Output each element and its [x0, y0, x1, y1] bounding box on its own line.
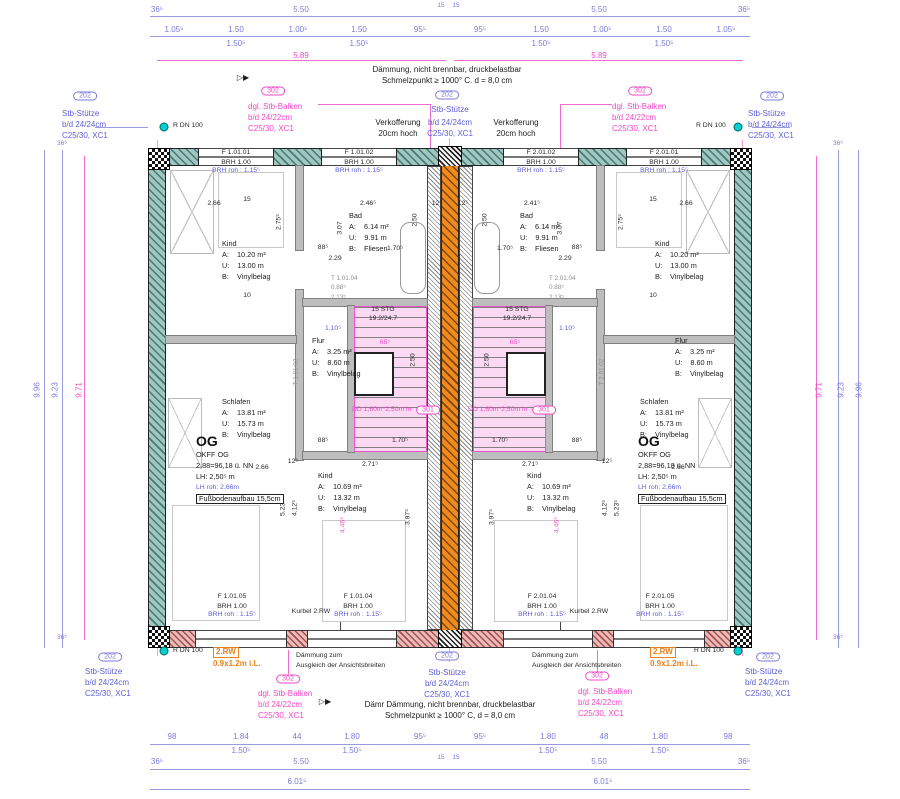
drain-dot-tr [734, 123, 743, 132]
stb-balken-bl: dgl. Stb-Balken [258, 690, 312, 699]
wall-interior [597, 166, 604, 250]
dim-int: 3.07 [336, 221, 343, 234]
dim-int: 12⁵ [602, 458, 612, 465]
dim-right: 9.23 [838, 382, 847, 398]
dim-top-mag: 5.89 [293, 52, 309, 61]
door-label-tl-line: 0.88⁵ [331, 283, 358, 292]
stb-balken-br: dgl. Stb-Balken [578, 688, 632, 697]
dim-line-right-mag [816, 156, 817, 640]
dim-int: 2.50 [411, 213, 418, 226]
room-flur-r-line: A: 3.25 m² [675, 346, 724, 357]
dim-top2b: 1.50⁵ [350, 40, 369, 49]
dim-int: 2.71⁵ [522, 461, 538, 468]
room-bad-l-line: U: 9.91 m [349, 232, 389, 243]
fussboden: Fußbodenaufbau 15,5cm [196, 494, 284, 504]
drain-dot-bl [160, 647, 169, 656]
room-kind-br-line: A: 10.69 m² [527, 481, 576, 492]
wall-top-pier [459, 148, 504, 166]
stair-eye-right [506, 352, 546, 396]
door-label: T 2.01.02 [600, 359, 607, 386]
badge-302-bl: 302 [276, 675, 300, 684]
dim-line-top-1 [150, 16, 750, 17]
floorplan-canvas: 36⁵5.5015155.5036⁵1.05⁵1.501.00⁵1.5095⁵9… [0, 0, 900, 799]
dim-int: 3.97⁵ [488, 509, 495, 525]
window-label: F 1.01.04BRH 1.00 [343, 592, 372, 612]
dim-int: 4.12⁵ [291, 500, 298, 516]
r-dn-100-bl: R DN 100 [173, 647, 203, 654]
room-kind-bl-line: Kind [318, 470, 367, 481]
dim-bot1: 1.80 [540, 733, 556, 742]
window-label-line: BRH 1.00 [217, 602, 246, 612]
stb-stuetze-bl: b/d 24/24cm [85, 679, 129, 688]
dim-bot1b: 1.50⁵ [232, 747, 251, 756]
badge-302-tl: 302 [261, 87, 285, 96]
dim-left: 9.96 [34, 382, 43, 398]
badge-202-tl: 202 [73, 92, 97, 101]
window-label-line: F 2.01.04 [527, 592, 556, 602]
stb-stuetze-bc: b/d 24/24cm [425, 680, 469, 689]
room-bad-r-line: U: 9.91 m [520, 232, 560, 243]
dim-bot1b: 1.50⁵ [651, 747, 670, 756]
room-flur-r-line: U: 8.60 m [675, 357, 724, 368]
badge-202-bl: 202 [98, 653, 122, 662]
dim-bot1b: 1.50⁵ [539, 747, 558, 756]
dim-top: 15 [437, 2, 444, 9]
kurbel: Kurbel 2.RW [292, 608, 330, 615]
stb-stuetze-br: b/d 24/24cm [745, 679, 789, 688]
stb-stuetze-bc: C25/30, XC1 [424, 691, 470, 700]
wall-interior [473, 452, 597, 459]
drain-dot-tl [160, 123, 169, 132]
room-schlafen-r: SchlafenA: 13.81 m²U: 15.73 mB: Vinylbel… [640, 396, 689, 440]
room-kind-tr-line: U: 13.00 m [655, 260, 704, 271]
window-label-line: BRH 1.00 [221, 158, 250, 168]
dim-int-mag: 4.46⁵ [553, 517, 560, 533]
r-dn-100-br: R DN 100 [694, 647, 724, 654]
daemmung-ausgleich-r-line: Dämmung zum [532, 651, 621, 661]
dim-bot1: 44 [293, 733, 302, 742]
badge-202-br: 202 [756, 653, 780, 662]
bed [218, 172, 284, 248]
room-kind-br-line: Kind [527, 470, 576, 481]
window-bottom-3 [504, 630, 592, 648]
window-bottom-2 [308, 630, 396, 648]
wall-bottom-pier [459, 630, 504, 648]
room-kind-tl-line: B: Vinylbelag [222, 271, 271, 282]
room-kind-br-line: B: Vinylbelag [527, 503, 576, 514]
daemmung-ausgleich-r-line: Ausgleich der Ansichtsbreiten [532, 661, 621, 671]
dim-line-right-2 [858, 150, 859, 648]
dim-int: 2.66 [255, 464, 268, 471]
dim-int: 15 [243, 196, 251, 203]
dim-top2: 1.00⁵ [593, 26, 612, 35]
stb-stuetze-tr: Stb-Stütze [748, 110, 785, 119]
stb-balken-br: C25/30, XC1 [578, 710, 624, 719]
dim-bot2: 36⁵ [151, 758, 163, 767]
verkofferung-left: 20cm hoch [378, 130, 417, 139]
stb-stuetze-br: C25/30, XC1 [745, 690, 791, 699]
daemmung-ausgleich-l-line: Ausgleich der Ansichtsbreiten [296, 661, 385, 671]
dim-int: 2.71⁵ [362, 461, 378, 468]
stb-stuetze-top: C25/30, XC1 [427, 130, 473, 139]
dim-int: 12⁵ [432, 200, 442, 207]
room-schlafen-l-line: Schlafen [222, 396, 271, 407]
wall-interior [166, 336, 296, 343]
kurbel: Kurbel 2.RW [570, 608, 608, 615]
rw-box: 2.RW [650, 647, 676, 658]
room-schlafen-r-line: U: 15.73 m [640, 418, 689, 429]
window-label-line: F 1.01.04 [343, 592, 372, 602]
leader-302-tl [318, 104, 430, 105]
window-label: F 1.01.05BRH 1.00 [217, 592, 246, 612]
room-flur-r-line: B: Vinylbelag [675, 368, 724, 379]
dim-int: 3.97⁵ [404, 509, 411, 525]
stb-balken-tr: C25/30, XC1 [612, 125, 658, 134]
window-label: F 1.01.01BRH 1.00 [221, 148, 250, 168]
window-label-line: F 2.01.01 [649, 148, 678, 158]
room-kind-tl-line: Kind [222, 238, 271, 249]
dim-stair-mag: 65⁵ [510, 339, 520, 346]
room-kind-br-line: U: 13.32 m [527, 492, 576, 503]
dim-top: 36⁵ [151, 6, 163, 15]
og-info-r-line: OKFF OG [638, 449, 695, 460]
wall-bottom-pier [592, 630, 614, 648]
dim-int: 10 [243, 292, 251, 299]
stb-balken-tl: C25/30, XC1 [248, 125, 294, 134]
door-label-tr: T 2.01.040.88⁵2.13⁵ [549, 274, 576, 302]
dim-int: 5.23⁵ [613, 500, 620, 516]
dim-bot3: 6.01⁵ [594, 778, 613, 787]
dim-int: 88⁵ [318, 244, 328, 251]
stb-stuetze-tr: b/d 24/24cm [748, 121, 792, 130]
dim-int: 1.70⁵ [387, 245, 403, 252]
dim-bot2: 5.50 [293, 758, 309, 767]
dim-bot1: 1.84 [233, 733, 249, 742]
dim-line-left-2 [62, 150, 63, 648]
room-kind-bl: KindA: 10.69 m²U: 13.32 mB: Vinylbelag [318, 470, 367, 514]
window-label-line: F 1.01.02 [344, 148, 373, 158]
stb-stuetze-bl: Stb-Stütze [85, 668, 122, 677]
dim-bot2: 36⁵ [738, 758, 750, 767]
window-label-line: BRH 1.00 [526, 158, 555, 168]
stair-label: 15 STG [505, 306, 528, 313]
party-wall-insulation-left [427, 166, 441, 630]
window-label: F 2.01.02BRH 1.00 [526, 148, 555, 168]
rw-size: 0.9x1.2m i.L. [213, 660, 261, 669]
room-schlafen-r-line: A: 13.81 m² [640, 407, 689, 418]
dim-int: 2.50 [409, 353, 416, 366]
og-info-l: OKFF OG2,88=96,18 ü. NNLH: 2,50⁵ m [196, 449, 253, 482]
badge-302-tr: 302 [628, 87, 652, 96]
og-info-l-line: OKFF OG [196, 449, 253, 460]
dim-left: 9.23 [52, 382, 61, 398]
leader-302-bl [288, 650, 289, 674]
dim-top: 15 [452, 2, 459, 9]
dim-top-mag: 5.89 [591, 52, 607, 61]
dim-top2: 1.50 [656, 26, 672, 35]
door-label-tl: T 1.01.040.88⁵2.13⁵ [331, 274, 358, 302]
dim-bot2: 15 [437, 754, 444, 761]
room-flur-l: FlurA: 3.25 m²U: 8.60 mB: Vinylbelag [312, 335, 361, 379]
room-kind-tr-line: Kind [655, 238, 704, 249]
room-bad-r-line: Bad [520, 210, 560, 221]
stb-balken-tr: b/d 24/22cm [612, 114, 656, 123]
og-title: OG [196, 434, 218, 449]
window-label: F 2.01.05BRH 1.00 [645, 592, 674, 612]
stb-stuetze-tl: b/d 24/24cm [62, 121, 106, 130]
room-kind-bl-line: A: 10.69 m² [318, 481, 367, 492]
og-info-r: OKFF OG2,88=96,18 ü. NNLH: 2,50⁵ m [638, 449, 695, 482]
stb-balken-tl: b/d 24/22cm [248, 114, 292, 123]
room-flur-l-line: B: Vinylbelag [312, 368, 361, 379]
dim-line-left-1 [44, 150, 45, 648]
wall-interior [303, 299, 427, 306]
window-label-line: BRH 1.00 [649, 158, 678, 168]
dim-int: 88⁵ [318, 437, 328, 444]
wall-bottom-pier [286, 630, 308, 648]
dim-line-bot-1 [150, 744, 750, 745]
window-label-line: F 2.01.05 [645, 592, 674, 602]
r-dn-100-tl: R DN 100 [173, 122, 203, 129]
room-kind-br: KindA: 10.69 m²U: 13.32 mB: Vinylbelag [527, 470, 576, 514]
door-label-tl-line: 2.13⁵ [331, 293, 358, 302]
badge-202-top: 202 [435, 91, 459, 100]
room-kind-tl: KindA: 10.20 m²U: 13.00 mB: Vinylbelag [222, 238, 271, 282]
room-flur-l-line: A: 3.25 m² [312, 346, 361, 357]
dim-int: 15 [649, 196, 657, 203]
wall-top-pier [578, 148, 627, 166]
daemmung-ausgleich-l-line: Dämmung zum [296, 651, 385, 661]
badge-301-stair-r: 301 [532, 406, 556, 415]
badge-202-bc: 202 [435, 652, 459, 661]
party-wall [441, 166, 459, 630]
stb-balken-bl: b/d 24/22cm [258, 701, 302, 710]
dim-top2: 95⁵ [474, 26, 486, 35]
room-flur-l-line: U: 8.60 m [312, 357, 361, 368]
daemmung-ausgleich-r: Dämmung zumAusgleich der Ansichtsbreiten [532, 651, 621, 671]
badge-302-br: 302 [585, 672, 609, 681]
fussboden: Fußbodenaufbau 15,5cm [638, 494, 726, 504]
dim-bot2: 5.50 [591, 758, 607, 767]
dim-int-blue: 1.10⁵ [325, 325, 341, 332]
dim-int: 1.70⁵ [492, 437, 508, 444]
dim-int: 88⁵ [572, 437, 582, 444]
party-wall-column-bottom [438, 628, 462, 648]
dim-bot1: 98 [724, 733, 733, 742]
stb-stuetze-tr: C25/30, XC1 [748, 132, 794, 141]
dim-top2: 95⁵ [414, 26, 426, 35]
room-kind-bl-line: B: Vinylbelag [318, 503, 367, 514]
dim-top2: 1.05⁵ [717, 26, 736, 35]
stb-balken-br: b/d 24/22cm [578, 699, 622, 708]
window-label-line: BRH 1.00 [343, 602, 372, 612]
stb-balken-tr: dgl. Stb-Balken [612, 103, 666, 112]
dim-line-right-1 [838, 150, 839, 648]
stb-stuetze-top: b/d 24/24cm [428, 119, 472, 128]
dim-right: 36⁵ [833, 634, 843, 641]
window-label-line: BRH 1.00 [645, 602, 674, 612]
dim-top2: 1.00⁵ [289, 26, 308, 35]
room-flur-l-line: Flur [312, 335, 361, 346]
room-bad-l-line: Bad [349, 210, 389, 221]
room-schlafen-l-line: A: 13.81 m² [222, 407, 271, 418]
wall-top-pier [396, 148, 441, 166]
stb-balken-bl: C25/30, XC1 [258, 712, 304, 721]
window-label-line: F 2.01.02 [526, 148, 555, 158]
window-label-line: F 1.01.01 [221, 148, 250, 158]
section-marker: ▷▶ [319, 698, 331, 707]
dim-bot1: 95⁵ [474, 733, 486, 742]
door-label-tr-line: 0.88⁵ [549, 283, 576, 292]
dim-top2: 1.50 [228, 26, 244, 35]
dim-bot3: 6.01⁵ [288, 778, 307, 787]
lh-roh: LH roh: 2,66m [638, 484, 681, 491]
dim-bot1: 1.80 [344, 733, 360, 742]
dim-top2b: 1.50⁵ [655, 40, 674, 49]
stair-dd: DD 1,60m*2,50m in [468, 406, 527, 413]
room-kind-tr: KindA: 10.20 m²U: 13.00 mB: Vinylbelag [655, 238, 704, 282]
stair-label: 19.2/24.7 [503, 315, 531, 322]
wall-interior [473, 299, 597, 306]
bathtub-left [400, 222, 426, 294]
stb-stuetze-bl: C25/30, XC1 [85, 690, 131, 699]
dim-bot2: 15 [452, 754, 459, 761]
room-bad-r: BadA: 6.14 m²U: 9.91 mB: Fliesen [520, 210, 560, 254]
wardrobe [170, 170, 214, 254]
note-top: Dämmung, nicht brennbar, druckbelastbar [373, 66, 522, 75]
room-kind-tl-line: U: 13.00 m [222, 260, 271, 271]
column-corner-tl [148, 148, 170, 170]
window-bottom-4 [614, 630, 704, 648]
dim-top2: 1.05⁵ [165, 26, 184, 35]
badge-202-tr: 202 [760, 92, 784, 101]
column-corner-br [730, 626, 752, 648]
room-bad-r-line: A: 6.14 m² [520, 221, 560, 232]
stair-label: 19.2/24.7 [369, 315, 397, 322]
door-label-tl-line: T 1.01.04 [331, 274, 358, 283]
og-info-l-line: LH: 2,50⁵ m [196, 471, 253, 482]
dim-top2b: 1.50⁵ [227, 40, 246, 49]
bed [616, 172, 682, 248]
wall-exterior-left [148, 148, 166, 648]
door-label-tr-line: T 2.01.04 [549, 274, 576, 283]
room-bad-l-line: B: Fliesen [349, 243, 389, 254]
verkofferung-right: 20cm hoch [496, 130, 535, 139]
dim-int: 2.29 [558, 255, 571, 262]
dim-bot1: 1.80 [652, 733, 668, 742]
rw-size: 0.9x1.2m i.L. [650, 660, 698, 669]
room-kind-tl-line: A: 10.20 m² [222, 249, 271, 260]
dim-int: 2.66 [207, 200, 220, 207]
dim-int: 1.70⁵ [497, 245, 513, 252]
wall-interior [303, 452, 427, 459]
wall-interior [296, 166, 303, 250]
note-top: Schmelzpunkt ≥ 1000° C. d = 8,0 cm [382, 77, 512, 86]
dim-top2b: 1.50⁵ [532, 40, 551, 49]
dim-bot1: 95⁵ [414, 733, 426, 742]
room-schlafen-r-line: Schlafen [640, 396, 689, 407]
dim-int: 88⁵ [572, 244, 582, 251]
dim-top2: 1.50 [351, 26, 367, 35]
room-flur-r-line: Flur [675, 335, 724, 346]
room-bad-r-line: B: Fliesen [520, 243, 560, 254]
dim-top2: 1.50 [533, 26, 549, 35]
window-label-line: BRH 1.00 [527, 602, 556, 612]
room-schlafen-l: SchlafenA: 13.81 m²U: 15.73 mB: Vinylbel… [222, 396, 271, 440]
dim-int: 1.70⁵ [392, 437, 408, 444]
badge-301-stair-l: 301 [416, 406, 440, 415]
column-corner-bl [148, 626, 170, 648]
dim-int: 2.46⁵ [360, 200, 376, 207]
wall-top-pier [273, 148, 322, 166]
leader-302-tr [560, 104, 612, 105]
dim-int: 2.41⁵ [524, 200, 540, 207]
section-marker: ▷▶ [237, 74, 249, 83]
dim-line-bot-3 [150, 789, 750, 790]
room-schlafen-l-line: B: Vinylbelag [222, 429, 271, 440]
r-dn-100-tr: R DN 100 [696, 122, 726, 129]
drain-dot-br [734, 647, 743, 656]
room-bad-l-line: A: 6.14 m² [349, 221, 389, 232]
room-bad-l: BadA: 6.14 m²U: 9.91 mB: Fliesen [349, 210, 389, 254]
dim-int: 12⁵ [458, 200, 468, 207]
dim-right: 36⁵ [833, 140, 843, 147]
bathtub-right [474, 222, 500, 294]
dim-left: 36⁵ [57, 140, 67, 147]
rw-box: 2.RW [213, 647, 239, 658]
dim-right: 9.96 [856, 382, 865, 398]
dim-line-bot-2 [150, 769, 750, 770]
dim-bot1: 98 [168, 733, 177, 742]
dim-top: 5.50 [293, 6, 309, 15]
dim-int: 2.75⁵ [275, 214, 282, 230]
lh-roh: LH roh: 2,66m [196, 484, 239, 491]
dim-line-top-2 [150, 36, 750, 37]
dim-top: 5.50 [591, 6, 607, 15]
dim-int: 2.75⁵ [617, 214, 624, 230]
dim-bot1b: 1.50⁵ [343, 747, 362, 756]
wall-stairwell-r [546, 306, 552, 452]
wall-exterior-right [734, 148, 752, 648]
dim-int: 4.12⁵ [601, 500, 608, 516]
column-corner-tr [730, 148, 752, 170]
room-kind-bl-line: U: 13.32 m [318, 492, 367, 503]
room-schlafen-l-line: U: 15.73 m [222, 418, 271, 429]
stb-stuetze-tl: Stb-Stütze [62, 110, 99, 119]
dim-stair-mag: 65⁵ [380, 339, 390, 346]
room-kind-tr-line: B: Vinylbelag [655, 271, 704, 282]
verkofferung-left: Verkofferung [375, 119, 420, 128]
dim-int: 2.50 [481, 213, 488, 226]
dim-int-mag: 4.46⁵ [339, 517, 346, 533]
daemmung-ausgleich-l: Dämmung zumAusgleich der Ansichtsbreiten [296, 651, 385, 671]
verkofferung-right: Verkofferung [493, 119, 538, 128]
stb-stuetze-br: Stb-Stütze [745, 668, 782, 677]
og-info-r-line: LH: 2,50⁵ m [638, 471, 695, 482]
stb-stuetze-tl: C25/30, XC1 [62, 132, 108, 141]
dim-int-blue: 1.10⁵ [559, 325, 575, 332]
stair-label: 15 STG [371, 306, 394, 313]
window-bottom-1 [196, 630, 286, 648]
dim-int: 10 [649, 292, 657, 299]
window-label-line: BRH 1.00 [344, 158, 373, 168]
note-bottom: Dämr Dämmung, nicht brennbar, druckbelas… [365, 701, 536, 710]
note-bottom: Schmelzpunkt ≥ 1000° C, d = 8,0 cm [385, 712, 515, 721]
dim-int: 12⁵ [288, 458, 298, 465]
stb-stuetze-bc: Stb-Stütze [428, 669, 465, 678]
window-label: F 1.01.02BRH 1.00 [344, 148, 373, 168]
dim-int: 2.66 [679, 200, 692, 207]
